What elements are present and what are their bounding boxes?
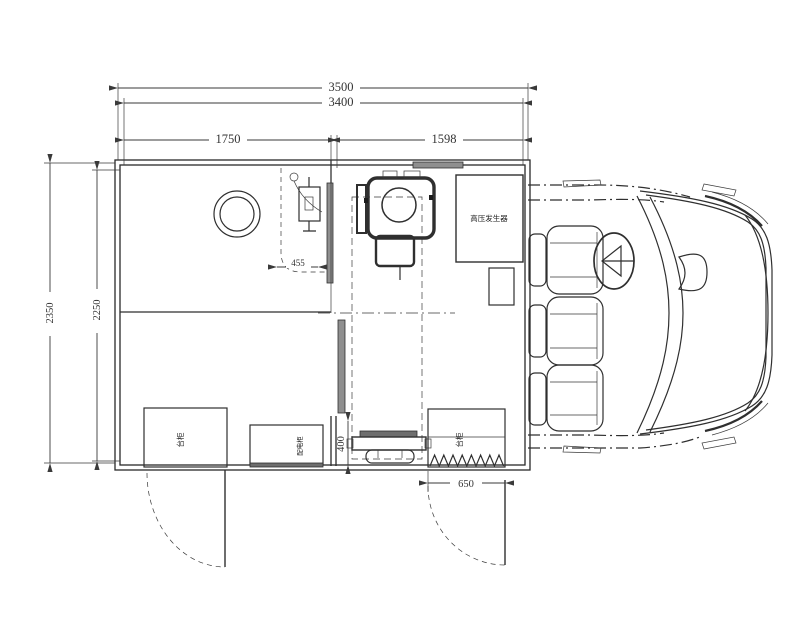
van-front-outline xyxy=(640,191,772,434)
steering-wheel xyxy=(594,233,634,289)
xray-unit xyxy=(357,171,434,280)
xray-tube-circle xyxy=(382,188,416,222)
dim-text-400: 400 xyxy=(336,436,347,452)
stool-inner xyxy=(220,197,254,231)
left-cabinet: 台柜 xyxy=(144,408,227,467)
detector-handle-ticks xyxy=(378,450,402,458)
power-cabinet-base xyxy=(250,463,323,467)
cabin-interior: 高压发生器 台柜 配电柜 台柜 xyxy=(144,160,523,567)
floor-plan-canvas: 高压发生器 台柜 配电柜 台柜 xyxy=(0,0,800,623)
seat-backrest xyxy=(529,373,546,425)
van-corner-accent-top xyxy=(705,196,762,226)
seat-bolster-lines xyxy=(550,303,597,359)
van-front-outline-inner xyxy=(646,195,766,430)
dim-text-3500: 3500 xyxy=(329,80,354,94)
sliding-door-upper-panel xyxy=(327,183,333,283)
power-cabinet-box xyxy=(250,425,323,465)
detector-top-bar xyxy=(360,431,417,437)
seat-cushion xyxy=(547,365,603,431)
dim-text-3400: 3400 xyxy=(329,95,354,109)
right-cabinet: 台柜 xyxy=(428,409,505,467)
vehicle-floor-plan-drawing: 高压发生器 台柜 配电柜 台柜 xyxy=(0,0,800,623)
hv-generator-label: 高压发生器 xyxy=(470,213,508,223)
cab-seat-passenger xyxy=(529,365,603,431)
xray-gantry xyxy=(368,178,434,238)
control-console xyxy=(281,168,331,272)
cabin-inner-wall xyxy=(120,165,525,465)
stool-outer xyxy=(214,191,260,237)
van-body-bottom-outer xyxy=(528,436,702,448)
console-chair-knob xyxy=(290,173,298,181)
hv-generator-cabinet: 高压发生器 xyxy=(456,175,523,305)
operator-stool xyxy=(214,191,260,237)
cab-seat-driver xyxy=(529,226,603,294)
console-chair-arm xyxy=(294,181,322,212)
right-cabinet-box xyxy=(428,409,505,467)
left-entry-door xyxy=(147,470,225,567)
cabin-box xyxy=(115,160,530,470)
cabin-outer-wall xyxy=(115,160,530,470)
top-window xyxy=(413,162,463,168)
power-cabinet-label: 配电柜 xyxy=(295,436,304,456)
van-bumper-line xyxy=(745,215,768,411)
right-door-swing-arc xyxy=(428,486,505,565)
right-cabinet-label: 台柜 xyxy=(454,432,464,447)
left-cabinet-box xyxy=(144,408,227,467)
dim-text-650: 650 xyxy=(458,479,474,490)
van-body-top-outer xyxy=(528,185,690,197)
van-cab xyxy=(528,180,772,453)
van-trim-top-left xyxy=(563,180,601,187)
seat-cushion xyxy=(547,297,603,365)
left-door-swing-arc xyxy=(147,473,225,567)
van-body-top-inner xyxy=(528,199,664,202)
detector-body xyxy=(352,437,426,450)
xray-generator-box xyxy=(376,236,414,266)
left-cabinet-label: 台柜 xyxy=(175,432,185,447)
van-windshield-line xyxy=(637,196,669,433)
van-hood-latch xyxy=(679,254,707,291)
detector-handle xyxy=(366,450,414,463)
dim-text-2250: 2250 xyxy=(92,300,103,321)
console-zone xyxy=(281,168,331,272)
xray-dot-right xyxy=(429,195,433,200)
dim-text-455: 455 xyxy=(291,258,305,268)
steering-wheel-spokes xyxy=(602,246,634,276)
extension-lines-top xyxy=(118,83,528,313)
dimension-lines: 3500 3400 1750 1598 2350 2250 455 400 65… xyxy=(43,80,528,492)
dim-text-2350: 2350 xyxy=(45,303,56,324)
seat-bolster-lines xyxy=(550,232,597,288)
hv-small-box xyxy=(489,268,514,305)
sliding-door-lower-panel xyxy=(338,320,345,413)
xray-dot-left xyxy=(364,198,368,203)
power-cabinet: 配电柜 xyxy=(250,425,323,467)
dim-text-1598: 1598 xyxy=(432,132,457,146)
right-entry-door xyxy=(428,480,505,565)
detector-device xyxy=(347,431,431,463)
van-cowl-line xyxy=(650,197,683,432)
van-trim-bottom-right xyxy=(702,437,736,449)
seat-bolster-lines xyxy=(550,371,597,425)
console-monitor-screen xyxy=(305,197,313,210)
van-trim-bottom-left xyxy=(563,446,601,453)
console-monitor xyxy=(299,187,320,221)
seat-backrest xyxy=(529,234,546,286)
cab-seat-middle xyxy=(529,297,603,365)
seat-backrest xyxy=(529,305,546,357)
xray-flange xyxy=(357,185,366,233)
dim-text-1750: 1750 xyxy=(216,132,241,146)
